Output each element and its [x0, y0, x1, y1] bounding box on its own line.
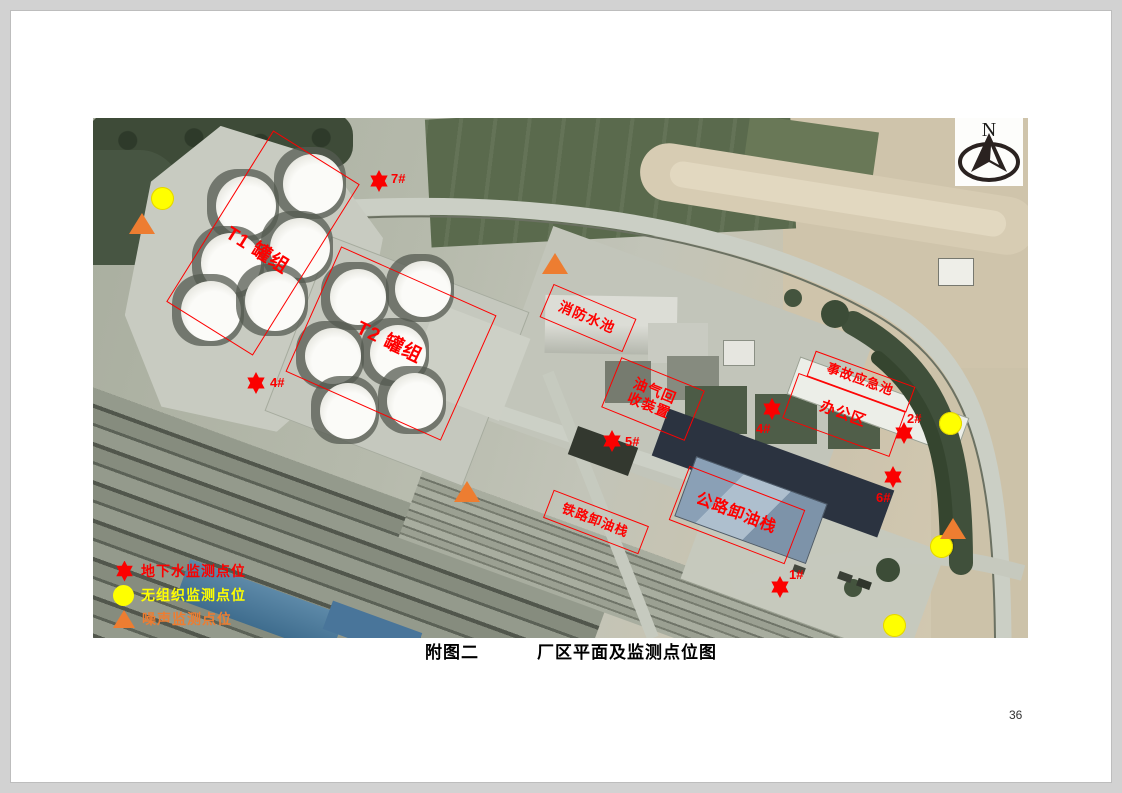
legend-item-noise: 噪声监测点位	[113, 607, 232, 631]
noise-point-marker	[129, 213, 155, 234]
legend-item-groundwater: 地下水监测点位	[115, 559, 246, 583]
circle-icon	[113, 585, 134, 606]
groundwater-point-label: 2#	[907, 412, 921, 425]
north-arrow: N	[955, 118, 1023, 186]
triangle-icon	[113, 610, 135, 628]
groundwater-point-marker	[883, 466, 903, 488]
groundwater-point-label: 1#	[789, 568, 803, 581]
groundwater-point-marker	[762, 398, 782, 420]
groundwater-point-marker	[246, 372, 266, 394]
star-icon	[115, 561, 134, 582]
groundwater-point-label: 6#	[876, 491, 890, 504]
satellite-image: N T1 罐组T2 罐组消防水池油气回收装置事故应急池办公区公路卸油栈铁路卸油栈…	[93, 118, 1028, 638]
groundwater-point-label: 4#	[270, 376, 284, 389]
groundwater-point-label: 5#	[625, 435, 639, 448]
figure-title: 厂区平面及监测点位图	[537, 643, 717, 662]
fugitive-point-marker	[151, 187, 174, 210]
groundwater-point-label: 7#	[391, 172, 405, 185]
groundwater-point-label: 4#	[756, 422, 770, 435]
groundwater-point-marker	[369, 170, 389, 192]
page-number: 36	[1009, 708, 1022, 722]
figure-number: 附图二	[425, 643, 479, 662]
fugitive-point-marker	[939, 412, 962, 435]
legend-item-fugitive: 无组织监测点位	[113, 583, 246, 607]
legend-label: 噪声监测点位	[142, 609, 232, 629]
noise-point-marker	[940, 518, 966, 539]
north-arrow-icon	[955, 118, 1023, 186]
legend-label: 无组织监测点位	[141, 585, 246, 605]
noise-point-marker	[542, 253, 568, 274]
legend-label: 地下水监测点位	[141, 561, 246, 581]
groundwater-point-marker	[602, 430, 622, 452]
annotation-overlay: T1 罐组T2 罐组消防水池油气回收装置事故应急池办公区公路卸油栈铁路卸油栈7#…	[93, 118, 1028, 638]
fugitive-point-marker	[883, 614, 906, 637]
noise-point-marker	[454, 481, 480, 502]
groundwater-point-marker	[770, 576, 790, 598]
figure-caption: 附图二厂区平面及监测点位图	[425, 638, 717, 663]
